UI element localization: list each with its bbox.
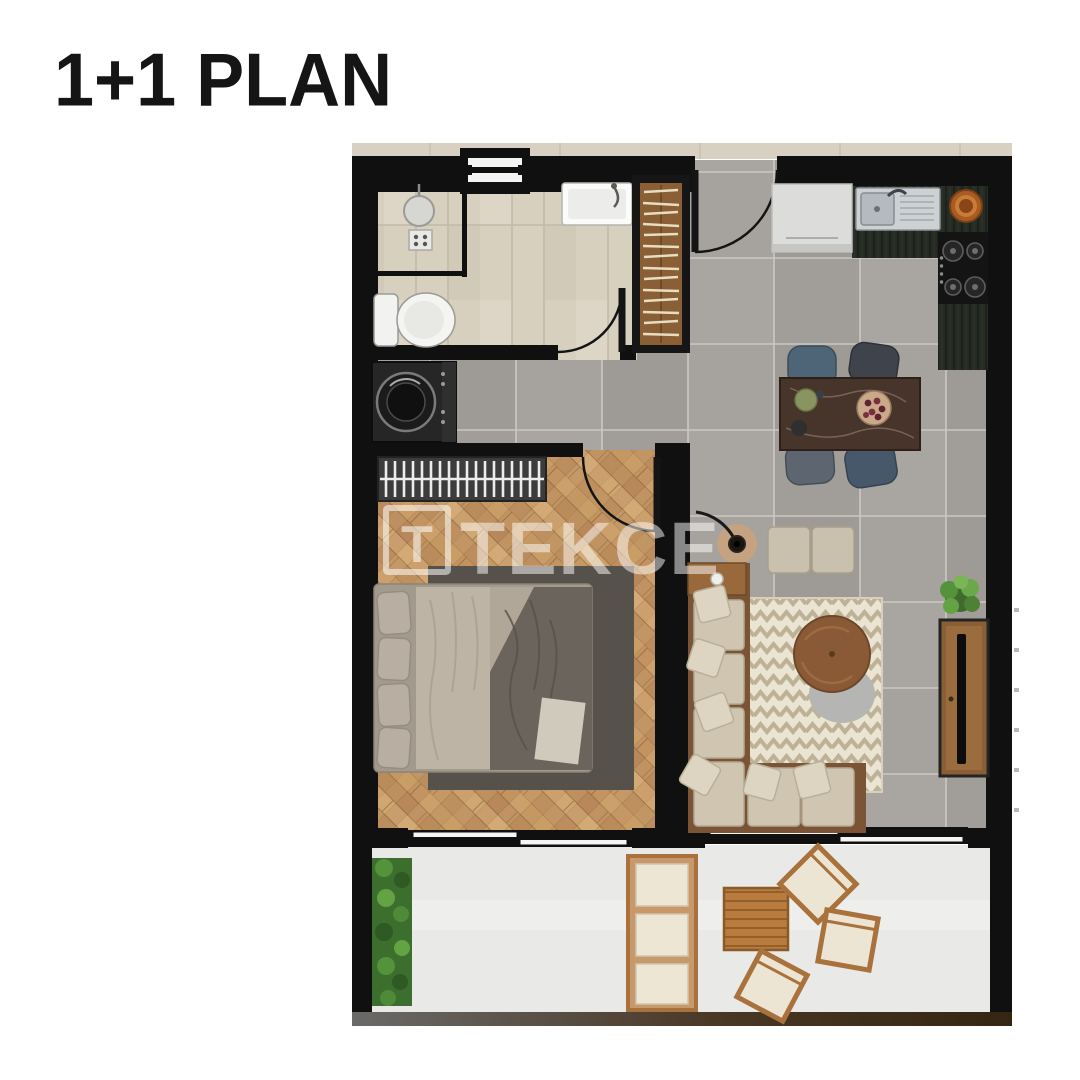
fruit-bowl-icon	[857, 391, 891, 425]
terrace-bench-icon	[628, 856, 696, 1010]
wall	[352, 345, 558, 360]
stove-icon	[938, 232, 988, 304]
watermark-text: TEKCE	[460, 507, 721, 590]
washing-machine-icon	[372, 362, 456, 442]
floor-plan-svg: T TEKCE	[0, 0, 1080, 1080]
hedge-icon	[372, 858, 412, 1006]
facade-ticks	[1014, 610, 1019, 810]
toilet-icon	[374, 293, 455, 347]
outdoor-table-icon	[724, 888, 788, 950]
terrace-edge	[352, 1012, 1012, 1026]
bowl-icon	[791, 420, 807, 436]
wall	[372, 443, 583, 457]
dining-table-icon	[780, 378, 920, 450]
ottoman-icon	[768, 527, 810, 573]
floor-plan-page: 1+1 PLAN	[0, 0, 1080, 1080]
kitchen-sink-icon	[856, 188, 940, 230]
sliding-door-icon	[408, 830, 632, 847]
ottoman-icon	[812, 527, 854, 573]
sink-icon	[562, 183, 632, 225]
fridge-icon	[772, 184, 852, 252]
wall	[986, 156, 1012, 845]
floor-drain-icon	[409, 230, 432, 250]
plate-icon	[795, 389, 817, 411]
terrace-wall	[352, 845, 372, 1017]
watermark-logo: T	[401, 516, 433, 574]
window-icon	[460, 148, 530, 194]
bed-icon	[374, 584, 592, 772]
tv-console-icon	[940, 620, 988, 776]
terrace-wall	[990, 845, 1012, 1017]
shower-icon	[404, 196, 434, 226]
knee-wall	[372, 271, 464, 276]
copper-bowl-icon	[950, 190, 982, 222]
radiator-icon	[378, 457, 546, 501]
tv-icon	[957, 634, 966, 764]
wardrobe-icon	[632, 175, 690, 353]
bedroom-furniture	[374, 566, 634, 790]
